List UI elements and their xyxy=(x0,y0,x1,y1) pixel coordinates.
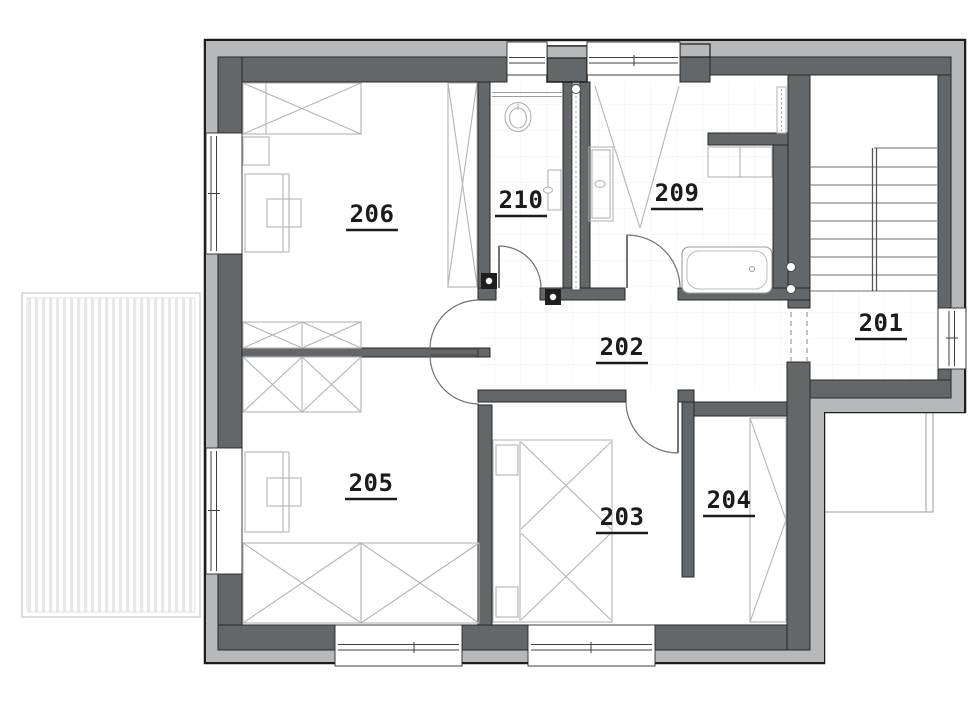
terrace-deck xyxy=(22,293,200,617)
floor-plan-canvas: 201 202 203 204 205 206 209 210 xyxy=(0,0,970,722)
wall-corridor-north xyxy=(478,288,496,300)
handrail-mount xyxy=(787,263,796,272)
room-label-206: 206 xyxy=(350,200,395,228)
wall-top-annex xyxy=(710,57,951,75)
wall-stairwell-west xyxy=(788,75,810,308)
column xyxy=(545,289,561,305)
vent-outlet-icon xyxy=(572,85,581,94)
towel-radiator-icon xyxy=(777,87,786,133)
column xyxy=(481,273,497,289)
room-label-203: 203 xyxy=(600,503,645,531)
room-label-201: 201 xyxy=(859,309,904,337)
wall-206-210 xyxy=(478,82,490,300)
wall-door-jamb xyxy=(478,348,490,357)
window-206-west xyxy=(206,133,242,254)
wall-210-209 xyxy=(563,82,572,293)
wall-209-east xyxy=(773,145,788,300)
window-205-west xyxy=(206,448,242,574)
window-201-east xyxy=(938,308,966,369)
wall-south xyxy=(462,625,528,650)
room-label-202: 202 xyxy=(600,333,645,361)
window-203-south xyxy=(528,625,655,666)
handrail-mount xyxy=(787,285,796,294)
wall-204-north xyxy=(694,402,787,416)
wall-corridor-south xyxy=(678,390,694,402)
pillar-cap xyxy=(680,44,710,57)
wall-top-pillar xyxy=(680,57,710,82)
wall-corridor-south xyxy=(478,390,626,402)
wall-west xyxy=(218,254,242,448)
wall-209-niche xyxy=(708,133,788,145)
wall-205-203 xyxy=(478,405,492,625)
lower-roof-outline xyxy=(824,412,933,512)
wall-east-main xyxy=(787,362,810,650)
window-205-south xyxy=(335,625,462,666)
wall-203-204 xyxy=(682,402,694,577)
floor-plan-drawing: 201 202 203 204 205 206 209 210 xyxy=(0,0,970,722)
wall-south xyxy=(218,625,335,650)
room-label-210: 210 xyxy=(499,186,544,214)
floor-210 xyxy=(490,82,563,288)
wall-south-annex xyxy=(810,380,951,398)
room-label-204: 204 xyxy=(707,486,752,514)
wall-west xyxy=(218,57,242,133)
wall-east-annex xyxy=(938,75,951,308)
wall-top-main xyxy=(218,57,507,82)
room-label-209: 209 xyxy=(655,179,700,207)
window-209-north xyxy=(587,42,680,75)
window-210-north xyxy=(507,42,547,75)
bathtub-icon xyxy=(682,247,772,293)
room-label-205: 205 xyxy=(349,469,394,497)
